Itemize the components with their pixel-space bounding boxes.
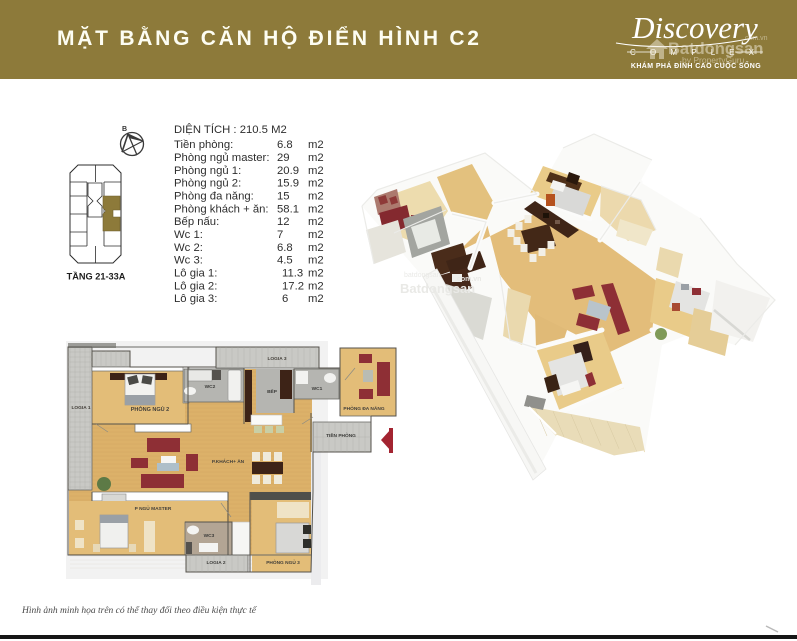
svg-text:LOGIA 3: LOGIA 3 — [267, 356, 286, 362]
svg-text:58.1: 58.1 — [277, 203, 299, 215]
svg-text:B: B — [122, 126, 127, 133]
svg-text:.com.vn: .com.vn — [743, 35, 768, 42]
svg-text:by PropertyGuru: by PropertyGuru — [682, 55, 745, 65]
svg-text:m2: m2 — [308, 203, 324, 215]
svg-text:Tiền phòng:: Tiền phòng: — [174, 139, 233, 151]
svg-text:WC2: WC2 — [205, 384, 216, 390]
svg-text:Phòng đa năng:: Phòng đa năng: — [174, 191, 254, 203]
svg-text:m2: m2 — [308, 165, 324, 177]
svg-text:m2: m2 — [308, 293, 324, 305]
svg-text:BẾP: BẾP — [267, 388, 278, 395]
svg-text:m2: m2 — [308, 191, 324, 203]
svg-text:12: 12 — [277, 216, 290, 228]
svg-text:Lô gia 1:: Lô gia 1: — [174, 268, 217, 280]
svg-text:Phòng ngủ 2:: Phòng ngủ 2: — [174, 178, 241, 190]
svg-text:m2: m2 — [308, 268, 324, 280]
svg-text:P.KHÁCH+ ĂN: P.KHÁCH+ ĂN — [212, 458, 245, 465]
svg-text:6: 6 — [282, 293, 288, 305]
svg-text:Wc 2:: Wc 2: — [174, 242, 203, 254]
svg-text:batdongsan: batdongsan — [404, 272, 441, 279]
svg-text:m2: m2 — [308, 242, 324, 254]
svg-text:Phòng ngủ 1:: Phòng ngủ 1: — [174, 165, 241, 177]
svg-text:P NGỦ MASTER: P NGỦ MASTER — [135, 505, 172, 512]
svg-text:m2: m2 — [308, 229, 324, 241]
svg-text:15.9: 15.9 — [277, 178, 299, 190]
svg-text:6.8: 6.8 — [277, 242, 293, 254]
svg-text:11.3: 11.3 — [282, 268, 303, 280]
svg-text:LOGIA 1: LOGIA 1 — [71, 405, 90, 411]
svg-text:DIỆN TÍCH : 210.5 M2: DIỆN TÍCH : 210.5 M2 — [174, 123, 287, 136]
svg-text:4.5: 4.5 — [277, 255, 293, 267]
svg-text:Phòng khách + ăn:: Phòng khách + ăn: — [174, 203, 269, 215]
svg-text:m2: m2 — [308, 216, 324, 228]
svg-text:WC1: WC1 — [312, 386, 323, 392]
svg-text:Wc 1:: Wc 1: — [174, 229, 203, 241]
svg-text:6.8: 6.8 — [277, 139, 293, 151]
svg-text:PHÒNG NGỦ 2: PHÒNG NGỦ 2 — [131, 405, 170, 413]
svg-text:Bếp nấu:: Bếp nấu: — [174, 216, 219, 228]
svg-text:29: 29 — [277, 152, 290, 164]
svg-text:Lô gia 2:: Lô gia 2: — [174, 280, 217, 292]
svg-text:TẦNG 21-33A: TẦNG 21-33A — [67, 272, 126, 282]
svg-text:m2: m2 — [308, 178, 324, 190]
svg-text:WC3: WC3 — [204, 533, 215, 539]
svg-text:15: 15 — [277, 191, 290, 203]
svg-text:m2: m2 — [308, 280, 324, 292]
svg-text:Phòng ngủ master:: Phòng ngủ master: — [174, 152, 269, 164]
svg-text:m2: m2 — [308, 255, 324, 267]
svg-text:20.9: 20.9 — [277, 165, 299, 177]
svg-text:Batdongsan: Batdongsan — [400, 281, 475, 296]
svg-text:Wc 3:: Wc 3: — [174, 255, 203, 267]
svg-text:7: 7 — [277, 229, 283, 241]
svg-text:LOGIA 2: LOGIA 2 — [206, 560, 225, 566]
svg-text:17.2: 17.2 — [282, 280, 304, 292]
svg-text:Hình ảnh minh họa trên có thể: Hình ảnh minh họa trên có thể thay đổi t… — [21, 605, 258, 616]
svg-text:Lô gia 3:: Lô gia 3: — [174, 293, 217, 305]
svg-text:m2: m2 — [308, 152, 324, 164]
svg-text:.com.vn: .com.vn — [455, 276, 481, 283]
svg-text:m2: m2 — [308, 139, 324, 151]
svg-text:MẶT BẰNG CĂN HỘ ĐIỂN HÌNH C2: MẶT BẰNG CĂN HỘ ĐIỂN HÌNH C2 — [57, 26, 482, 50]
